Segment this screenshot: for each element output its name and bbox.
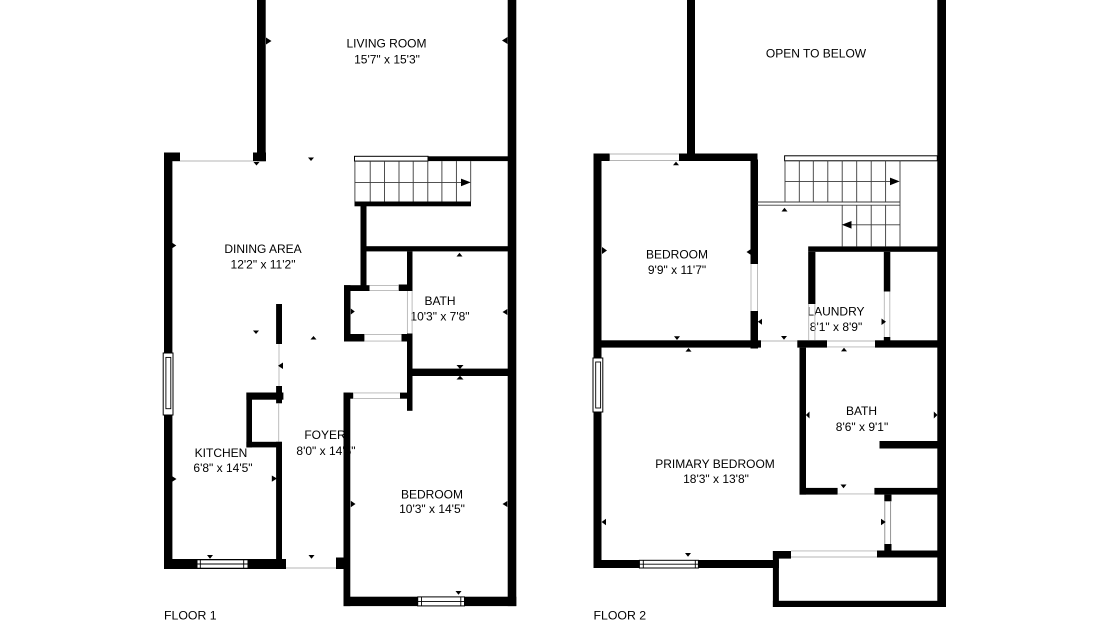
svg-text:LIVING ROOM: LIVING ROOM — [346, 37, 426, 51]
svg-text:BATH: BATH — [424, 294, 455, 308]
svg-text:18'3" x 13'8": 18'3" x 13'8" — [683, 472, 749, 486]
svg-text:12'2" x 11'2": 12'2" x 11'2" — [231, 258, 296, 272]
svg-text:8'6" x 9'1": 8'6" x 9'1" — [836, 420, 888, 434]
svg-text:KITCHEN: KITCHEN — [195, 446, 248, 460]
svg-text:DINING AREA: DINING AREA — [224, 242, 301, 256]
svg-text:FOYER: FOYER — [304, 428, 346, 442]
svg-text:FLOOR 2: FLOOR 2 — [594, 609, 647, 623]
svg-text:10'3" x 14'5": 10'3" x 14'5" — [399, 502, 465, 516]
svg-text:LAUNDRY: LAUNDRY — [807, 305, 864, 319]
svg-text:6'8" x 14'5": 6'8" x 14'5" — [193, 461, 252, 475]
svg-text:BEDROOM: BEDROOM — [401, 488, 463, 502]
svg-text:PRIMARY BEDROOM: PRIMARY BEDROOM — [655, 457, 775, 471]
svg-text:9'9" x 11'7": 9'9" x 11'7" — [648, 263, 706, 277]
svg-text:BATH: BATH — [846, 404, 877, 418]
svg-text:10'3" x 7'8": 10'3" x 7'8" — [410, 310, 469, 324]
svg-text:15'7" x 15'3": 15'7" x 15'3" — [354, 53, 420, 67]
svg-text:8'1" x 8'9": 8'1" x 8'9" — [810, 320, 862, 334]
svg-text:BEDROOM: BEDROOM — [646, 248, 708, 262]
svg-text:FLOOR 1: FLOOR 1 — [164, 609, 217, 623]
svg-text:OPEN TO BELOW: OPEN TO BELOW — [766, 47, 867, 61]
